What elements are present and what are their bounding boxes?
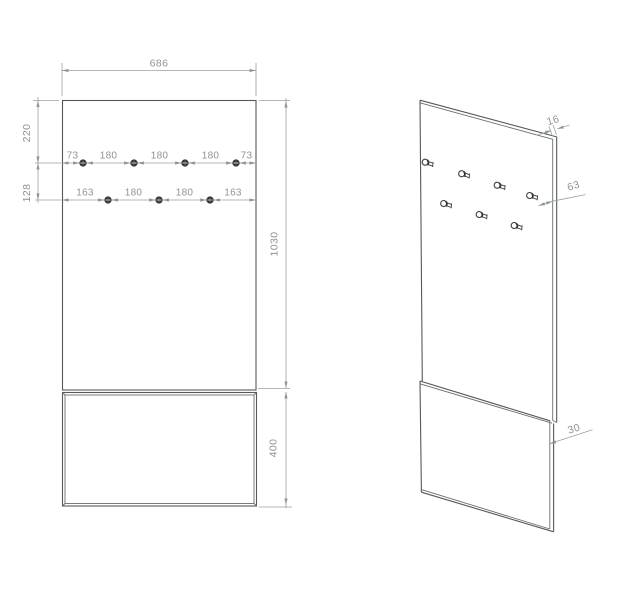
isometric-view: 16 63 30: [420, 100, 593, 532]
hook-iso: [458, 170, 470, 178]
hook-row-top: 73 180 180 180 73: [35, 151, 256, 167]
dim-right-heights: 1030 400: [258, 98, 292, 508]
dim-spacing-label: 180: [151, 151, 169, 162]
hook-iso: [476, 211, 488, 219]
technical-drawing-canvas: 686 220 128 1030 400: [0, 0, 640, 600]
dim-spacing-label: 180: [125, 188, 143, 199]
hook-iso: [422, 159, 434, 167]
dim-panel-height-label: 1030: [269, 232, 281, 257]
hook-front-marker: [207, 197, 214, 204]
dim-hook-length: 63: [538, 179, 585, 208]
front-view: 686 220 128 1030 400: [21, 58, 292, 509]
dim-top-offset-label: 220: [21, 124, 33, 143]
dim-bottom-panel-height-label: 400: [268, 439, 280, 458]
hook-front-marker: [105, 197, 112, 204]
dim-row-gap-label: 128: [21, 184, 33, 203]
hook-front-marker: [182, 160, 189, 167]
hook-iso: [526, 192, 538, 200]
dim-spacing-label: 163: [224, 188, 242, 199]
hook-iso: [494, 182, 506, 190]
dim-bottom-panel-thickness: 30: [549, 422, 592, 446]
hook-front-marker: [80, 160, 87, 167]
technical-drawing: 686 220 128 1030 400: [0, 0, 640, 600]
dim-spacing-label: 180: [202, 151, 220, 162]
iso-panel-outline: [420, 100, 557, 422]
hook-iso: [440, 200, 452, 208]
dim-bottom-thickness-label: 30: [566, 422, 582, 437]
dim-spacing-label: 180: [176, 188, 194, 199]
hook-iso: [511, 222, 523, 230]
dim-hook-length-label: 63: [566, 179, 581, 194]
front-bottom-panel-outline: [63, 393, 257, 507]
dim-spacing-label: 163: [76, 188, 94, 199]
dim-thickness-label: 16: [545, 113, 560, 128]
dim-spacing-label: 180: [100, 151, 118, 162]
iso-bottom-panel-outline: [420, 381, 554, 532]
hook-front-marker: [156, 197, 163, 204]
hook-front-marker: [233, 160, 240, 167]
hook-front-marker: [131, 160, 138, 167]
dim-spacing-label: 73: [241, 151, 253, 162]
iso-hooks: [422, 159, 539, 231]
hook-row-bottom: 163 180 180 163: [35, 188, 256, 204]
dim-spacing-label: 73: [67, 151, 79, 162]
dim-width: 686: [62, 58, 256, 97]
dim-width-label: 686: [150, 58, 169, 70]
dim-left-offsets: 220 128: [21, 97, 59, 203]
leader-line: [553, 195, 586, 202]
front-panel-outline: [63, 101, 257, 391]
